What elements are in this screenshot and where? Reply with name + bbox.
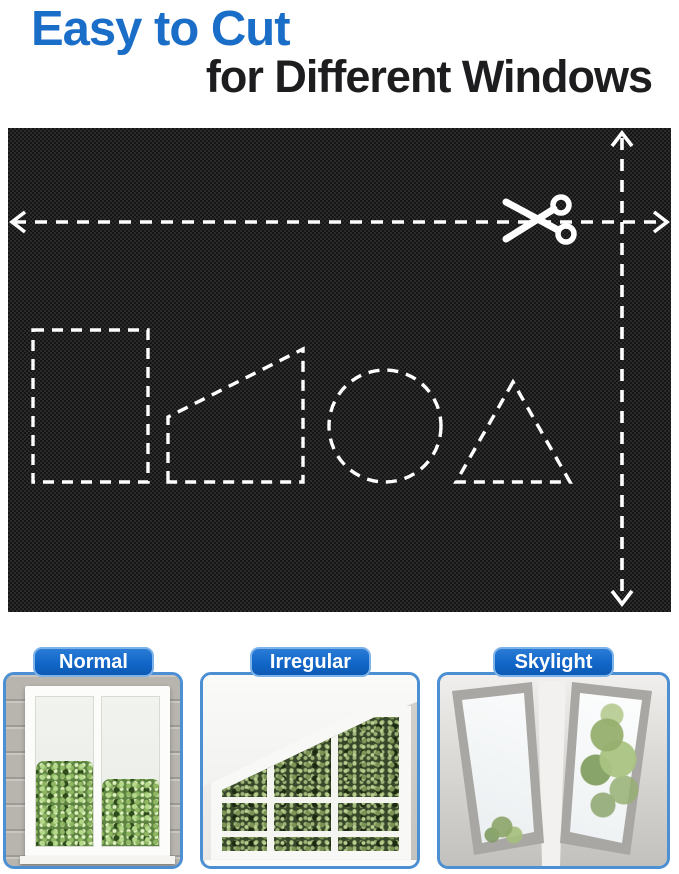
shape-circle	[329, 370, 441, 482]
window-card-normal	[3, 672, 183, 869]
window-mullion	[203, 797, 417, 803]
label-irregular-text: Irregular	[270, 651, 351, 674]
window-card-irregular	[200, 672, 420, 869]
window-pane-left	[35, 696, 94, 847]
fabric-swatch-panel	[8, 128, 671, 612]
foliage	[102, 779, 159, 846]
foliage	[36, 761, 93, 846]
label-skylight: Skylight	[493, 647, 614, 677]
normal-window-photo	[6, 675, 180, 866]
window-mullion	[203, 831, 417, 837]
shape-trapezoid	[168, 349, 303, 482]
window-sill	[20, 856, 175, 864]
page-title: Easy to Cut	[31, 1, 290, 57]
window-pane-right	[101, 696, 160, 847]
window-card-skylight	[437, 672, 670, 869]
casement-window	[25, 686, 170, 857]
irregular-window-photo	[203, 675, 417, 866]
skylight-photo	[440, 675, 667, 866]
page-subtitle: for Different Windows	[206, 51, 652, 103]
scissors-icon	[500, 192, 580, 252]
product-infographic: Easy to Cut for Different Windows	[0, 0, 679, 874]
label-irregular: Irregular	[250, 647, 371, 677]
shape-triangle	[456, 382, 570, 482]
label-skylight-text: Skylight	[515, 651, 593, 674]
shape-rectangle	[33, 330, 148, 482]
tree	[440, 675, 667, 866]
label-normal-text: Normal	[59, 651, 128, 674]
down-arrow-icon	[612, 591, 632, 604]
window-sill	[205, 860, 417, 867]
label-normal: Normal	[33, 647, 154, 677]
